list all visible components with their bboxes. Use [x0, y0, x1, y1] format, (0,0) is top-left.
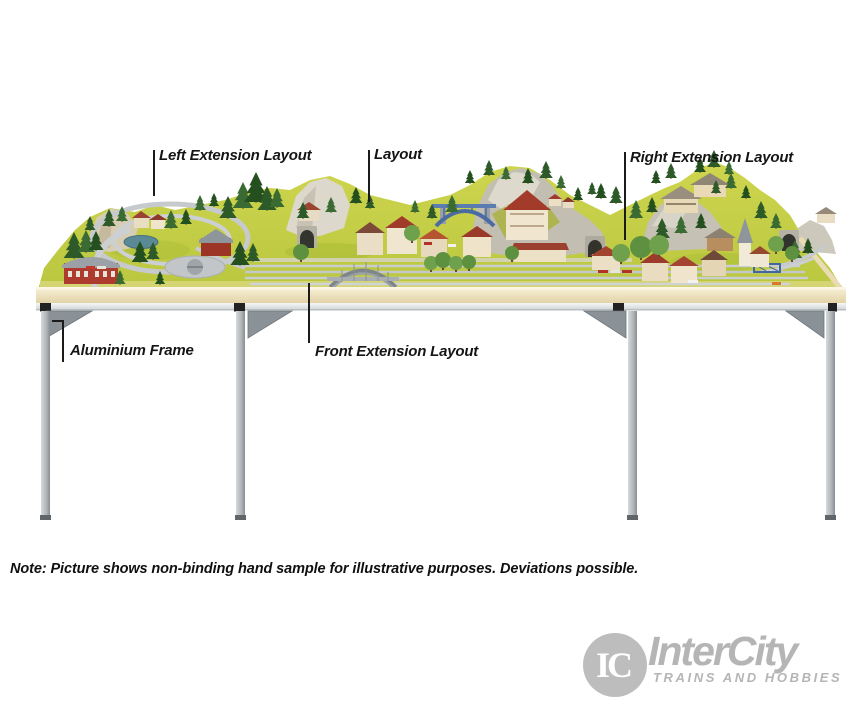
label-aluminium-frame: Aluminium Frame — [70, 342, 194, 359]
leader-line-right-extension — [624, 152, 626, 240]
gusset-bracket — [786, 311, 824, 338]
leg-foot — [40, 515, 51, 520]
gusset-bracket — [46, 311, 92, 338]
corner-plate — [613, 303, 624, 312]
product-image: Left Extension Layout Layout Right Exten… — [0, 0, 850, 708]
label-layout: Layout — [374, 146, 422, 163]
intercity-logo-icon: IC — [583, 633, 647, 697]
station-building — [511, 243, 569, 262]
label-left-extension-layout: Left Extension Layout — [159, 147, 311, 164]
corner-plate — [828, 303, 837, 312]
leg-foot — [627, 515, 638, 520]
table-leg-midleft — [236, 311, 245, 517]
leader-line-layout — [368, 150, 370, 202]
leg-foot — [235, 515, 246, 520]
leader-line-front-extension — [308, 283, 310, 343]
leader-line-aluminium-frame — [62, 320, 64, 362]
label-right-extension-layout: Right Extension Layout — [630, 149, 793, 166]
disclaimer-note: Note: Picture shows non-binding hand sam… — [10, 561, 638, 577]
gusset-bracket — [584, 311, 626, 338]
leg-foot — [825, 515, 836, 520]
engine-shed — [62, 257, 120, 284]
logo-monogram: IC — [596, 644, 630, 686]
corner-plate — [40, 303, 51, 312]
midleft-rocky-hill — [286, 178, 350, 236]
table-frame — [36, 287, 846, 520]
gusset-bracket — [248, 311, 292, 338]
leader-line-left-extension — [153, 150, 155, 196]
logo-wordmark: InterCity — [648, 628, 796, 675]
table-leg-right — [826, 311, 835, 517]
table-leg-midright — [628, 311, 637, 517]
label-front-extension-layout: Front Extension Layout — [315, 343, 478, 360]
aluminium-rail — [36, 303, 846, 310]
logo-tagline: TRAINS AND HOBBIES — [653, 670, 842, 685]
corner-plate — [234, 303, 245, 312]
table-leg-left — [41, 311, 50, 517]
